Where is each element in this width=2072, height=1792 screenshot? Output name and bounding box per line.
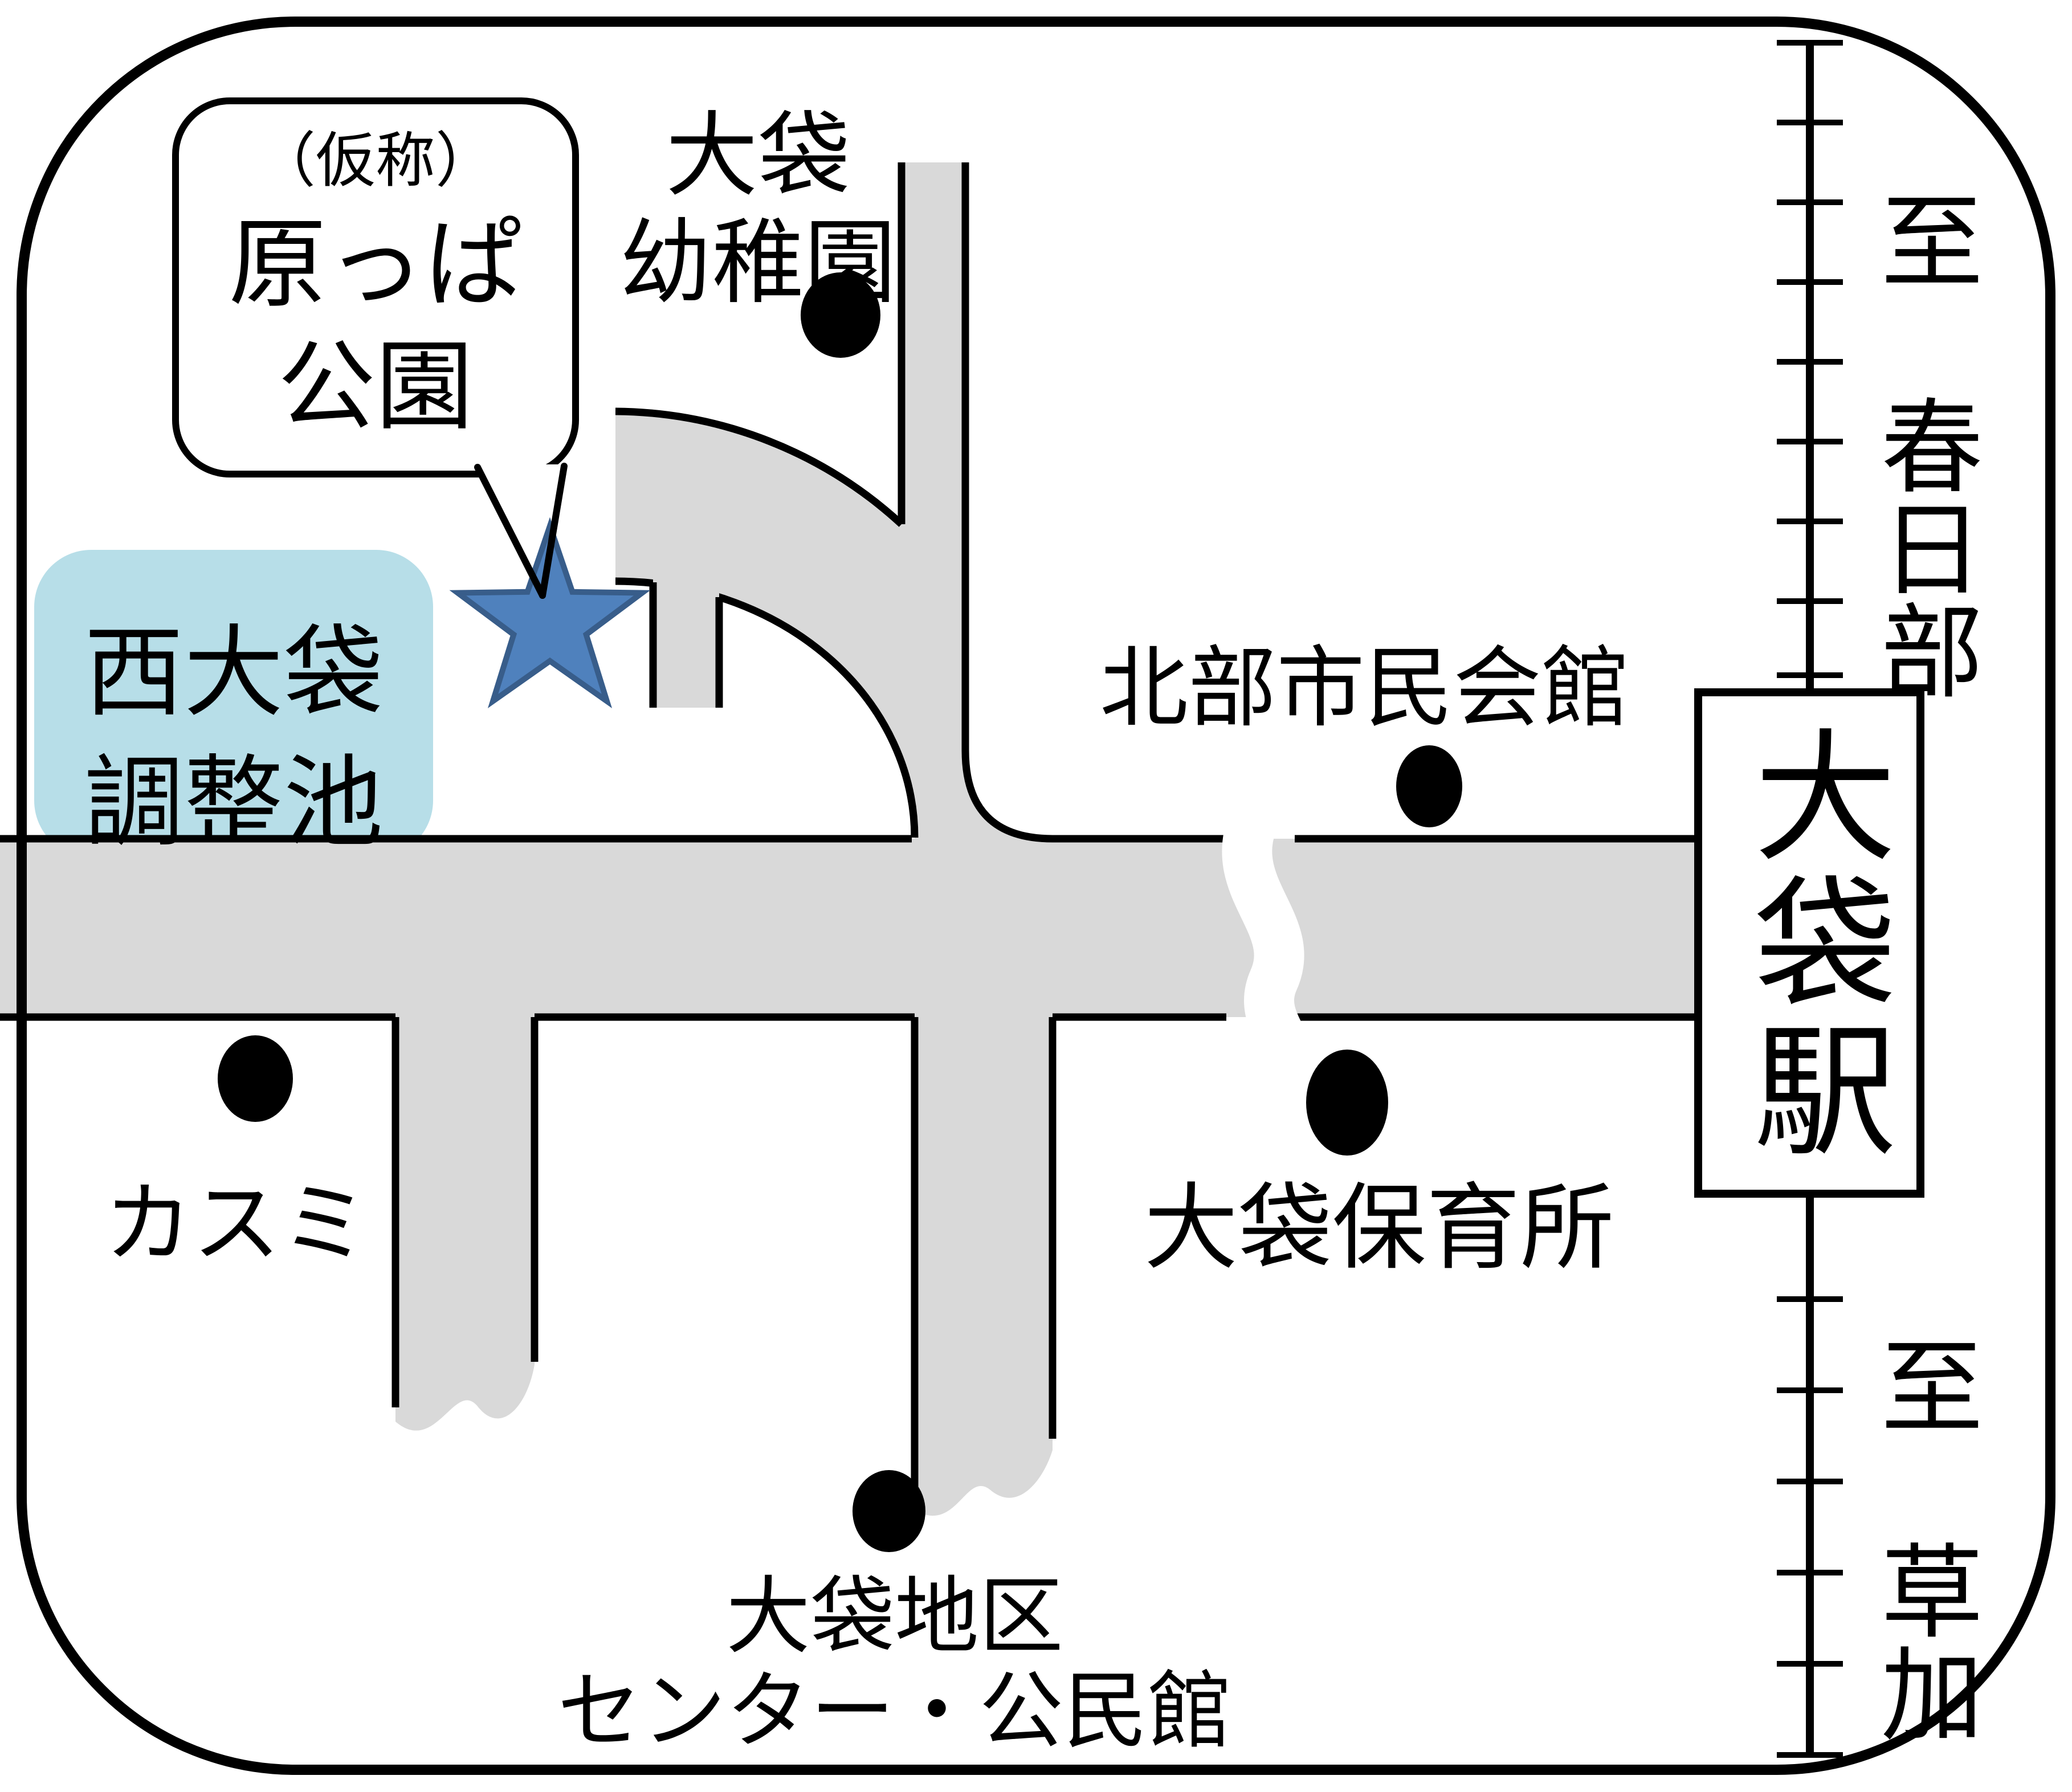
- label-district-center: 大袋地区 センター・公民館: [547, 1570, 1242, 1759]
- south-road-west: [395, 1014, 535, 1431]
- rail-direction-north: 至 春日部: [1859, 188, 1973, 701]
- poi-dot-kasumi: [218, 1035, 293, 1122]
- station-label: 大袋駅: [1735, 722, 1883, 1164]
- label-kindergarten: 大袋 幼稚園: [587, 103, 929, 317]
- label-nursery: 大袋保育所: [1131, 1174, 1627, 1283]
- access-road-stub: [653, 577, 719, 708]
- bubble-title-line2: 原っぱ: [176, 208, 576, 322]
- pond-label: 西大袋 調整池: [34, 609, 433, 868]
- map-canvas: （仮称） 原っぱ 公園 西大袋 調整池 大袋 幼稚園 北部市民会館 カスミ 大袋…: [0, 0, 2072, 1792]
- bubble-title-line3: 公園: [176, 330, 576, 444]
- bubble-title-prefix: （仮称）: [176, 126, 576, 196]
- poi-dot-nursery: [1306, 1050, 1388, 1156]
- poi-dot-district-center: [853, 1470, 925, 1552]
- poi-dot-citizens-hall: [1396, 745, 1462, 827]
- label-citizens-hall: 北部市民会館: [1100, 637, 1630, 740]
- label-kasumi: カスミ: [80, 1173, 393, 1275]
- rail-direction-south: 至 草加: [1859, 1333, 1973, 1744]
